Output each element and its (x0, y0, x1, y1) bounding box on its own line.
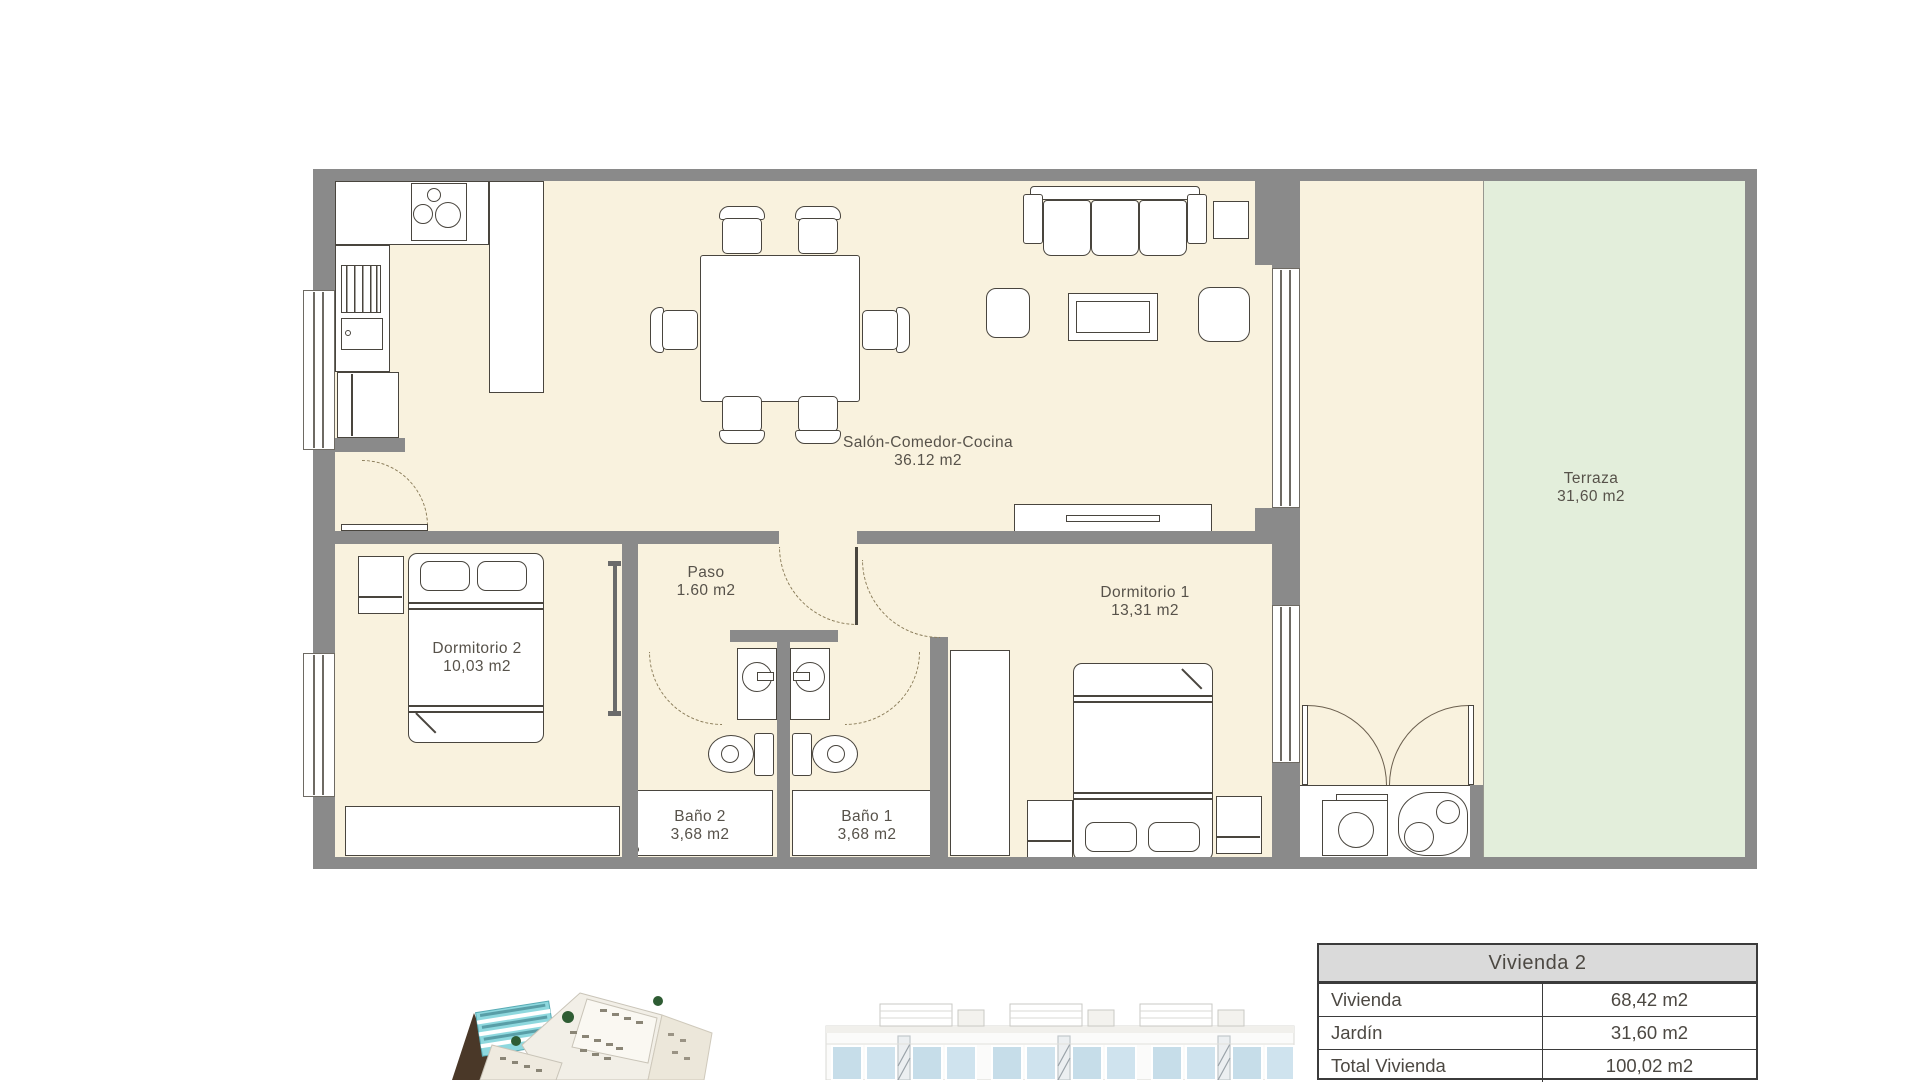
summary-table: Vivienda 2 Vivienda 68,42 m2 Jardín 31,6… (1317, 943, 1758, 1080)
toilet-tank (792, 733, 812, 776)
chair-back (896, 307, 910, 353)
room-name: Baño 1 (838, 808, 897, 826)
sofa-armrest (1187, 194, 1207, 244)
nightstand-shelf-line (1217, 836, 1260, 838)
window-glazing-line (313, 655, 315, 795)
room-area: 1.60 m2 (677, 582, 736, 600)
wall-dorm1-west (930, 637, 948, 857)
room-area: 3,68 m2 (838, 826, 897, 844)
toilet-tank (754, 733, 774, 776)
bed-sheet-line (409, 711, 543, 713)
tv (1066, 515, 1160, 522)
room-name: Baño 2 (671, 808, 730, 826)
kitchen-rack (341, 265, 381, 313)
sofa-back (1030, 186, 1200, 200)
stove-burner (427, 188, 441, 202)
water-heater-dial (1436, 800, 1460, 824)
pillow (420, 561, 470, 591)
window-glazing-line (322, 655, 324, 795)
sofa-cushion (1091, 200, 1139, 256)
pillow (477, 561, 527, 591)
washing-machine-door (1338, 812, 1374, 848)
wall-bano1-top (790, 630, 838, 642)
table-row-label: Total Vivienda (1319, 1050, 1542, 1082)
wall-horizontal (313, 531, 779, 544)
rooftop-structures (880, 1004, 1244, 1026)
chair-seat (798, 396, 838, 432)
toilet-bowl-inner (721, 745, 739, 763)
room-area: 31,60 m2 (1557, 488, 1625, 506)
wall-banos-center (777, 630, 790, 857)
room-label-dormitorio2: Dormitorio 2 10,03 m2 (432, 640, 521, 676)
pillow (1085, 822, 1137, 852)
window-glazing-line (1280, 270, 1282, 506)
kitchen-peninsula-counter (489, 181, 544, 393)
sofa-armrest (1023, 194, 1043, 244)
summary-table-title: Vivienda 2 (1319, 945, 1756, 983)
window-glazing-line (322, 292, 324, 448)
bed-sheet-line (1074, 695, 1212, 697)
room-name: Dormitorio 2 (432, 640, 521, 658)
dining-table (700, 255, 860, 402)
stove-burner (435, 202, 461, 228)
toilet-bowl-inner (827, 745, 845, 763)
water-heater-dial (1404, 822, 1434, 852)
bed-sheet-line (409, 602, 543, 604)
faucet (793, 672, 810, 681)
room-label-paso: Paso 1.60 m2 (677, 564, 736, 600)
window-glazing-line (313, 292, 315, 448)
table-row-value: 68,42 m2 (1542, 984, 1756, 1016)
table-row: Jardín 31,60 m2 (1319, 1016, 1756, 1049)
chair-seat (722, 218, 762, 254)
table-row-label: Jardín (1319, 1017, 1542, 1049)
nightstand-shelf-line (1028, 840, 1071, 842)
door-leaf-paso (855, 547, 858, 625)
window-glazing-line (1280, 607, 1282, 761)
nightstand-shelf-line (359, 596, 402, 598)
wall-bano2-top (730, 630, 790, 642)
wall-horizontal (857, 531, 1272, 544)
window-glazing-line (1289, 607, 1291, 761)
sofa-cushion (1043, 200, 1091, 256)
sofa-cushion (1139, 200, 1187, 256)
table-row: Total Vivienda 100,02 m2 (1319, 1049, 1756, 1082)
window-glazing-line (1289, 270, 1291, 506)
sink-knob (345, 330, 351, 336)
door-leaf-entry (341, 524, 428, 531)
room-area: 10,03 m2 (432, 658, 521, 676)
door-leaf-terrace-right (1468, 705, 1474, 785)
sliding-door (613, 565, 617, 713)
door-leaf-terrace-left (1302, 705, 1308, 785)
room-label-salon: Salón-Comedor-Cocina 36.12 m2 (843, 434, 1013, 470)
wall-pillar (1255, 181, 1272, 265)
chair-back (719, 430, 765, 444)
window (1272, 268, 1300, 508)
bed-sheet-line (1074, 701, 1212, 703)
room-label-bano1: Baño 1 3,68 m2 (838, 808, 897, 844)
wall-top (313, 169, 1757, 181)
room-label-bano2: Baño 2 3,68 m2 (671, 808, 730, 844)
window (1272, 605, 1300, 763)
chair-seat (798, 218, 838, 254)
floor-plan-page: { "plan": { "rooms": { "salon": {"name":… (0, 0, 1920, 1080)
coffee-table-inner (1076, 301, 1150, 333)
table-row: Vivienda 68,42 m2 (1319, 983, 1756, 1016)
chair-seat (662, 310, 698, 350)
room-name: Dormitorio 1 (1100, 584, 1189, 602)
fridge (337, 372, 399, 438)
nightstand (1216, 796, 1262, 854)
room-label-terraza: Terraza 31,60 m2 (1557, 470, 1625, 506)
chair-seat (722, 396, 762, 432)
wall-closet-right (1470, 785, 1483, 857)
fridge-door-line (351, 374, 353, 436)
sliding-door-cap (608, 561, 621, 566)
wardrobe (345, 806, 620, 856)
pouf (986, 288, 1030, 338)
room-name: Salón-Comedor-Cocina (843, 434, 1013, 452)
bed-sheet-line (1074, 792, 1212, 794)
room-name: Terraza (1557, 470, 1625, 488)
chair-back (795, 430, 841, 444)
chair-seat (862, 310, 898, 350)
table-row-label: Vivienda (1319, 984, 1542, 1016)
room-area: 13,31 m2 (1100, 602, 1189, 620)
room-area: 3,68 m2 (671, 826, 730, 844)
nightstand (358, 556, 404, 614)
sliding-door-cap (608, 711, 621, 716)
wall-bottom (313, 857, 1757, 869)
wall-right (1745, 169, 1757, 869)
bed-sheet-line (1074, 798, 1212, 800)
bed-sheet-line (409, 705, 543, 707)
nightstand (1027, 800, 1073, 858)
window (303, 290, 335, 450)
bed-sheet-line (409, 608, 543, 610)
table-row-value: 100,02 m2 (1542, 1050, 1756, 1082)
room-name: Paso (677, 564, 736, 582)
pillow (1148, 822, 1200, 852)
side-table (1213, 201, 1249, 239)
table-row-value: 31,60 m2 (1542, 1017, 1756, 1049)
room-area: 36.12 m2 (843, 452, 1013, 470)
stove-burner (413, 204, 433, 224)
building-elevation-render-image (820, 998, 1300, 1080)
garden-floor (1483, 181, 1746, 857)
wall-dorm2-east (622, 544, 638, 857)
pouf (1198, 287, 1250, 342)
window (303, 653, 335, 797)
aerial-complex-render-image (452, 985, 744, 1080)
wardrobe (950, 650, 1010, 856)
faucet (757, 672, 774, 681)
room-label-dormitorio1: Dormitorio 1 13,31 m2 (1100, 584, 1189, 620)
